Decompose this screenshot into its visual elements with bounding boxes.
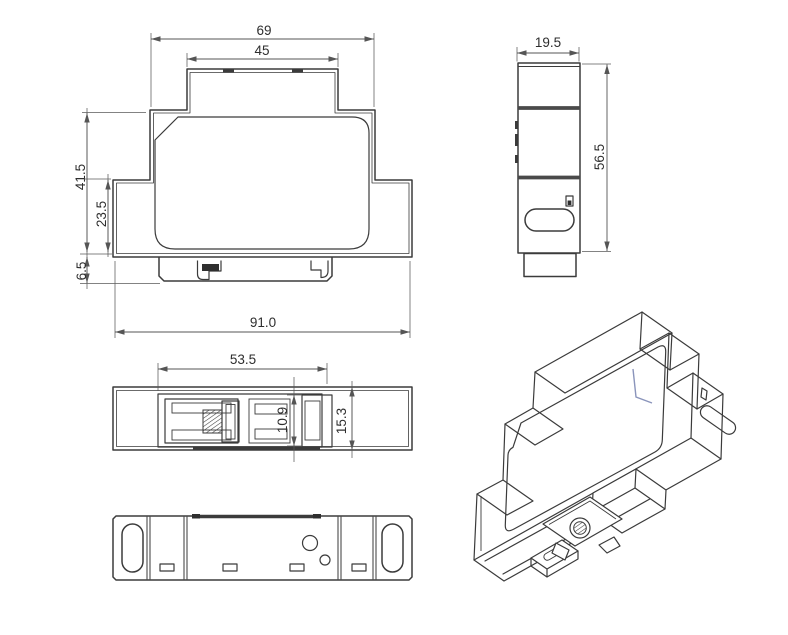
dim-front-overall-width: 91.0 (250, 315, 276, 330)
technical-drawing: 69 45 91.0 41.5 6.5 23.5 (0, 0, 788, 635)
top-vent-slot-3 (290, 564, 304, 571)
side-small-slot-mark (568, 201, 572, 206)
side-view: 19.5 56.5 (516, 35, 611, 277)
front-cover-panel (155, 117, 369, 249)
front-body-outline (113, 69, 412, 257)
clip-fork (165, 399, 238, 443)
dim-bottom-clip-overall-width: 15.3 (334, 408, 349, 434)
dim-front-body-height: 41.5 (73, 164, 88, 190)
dim-side-depth: 19.5 (535, 35, 561, 50)
dim-bottom-rail-slot-width: 10.9 (275, 407, 290, 433)
iso-din-clip-spring (531, 497, 622, 577)
clip-slider-bar (222, 401, 239, 442)
dim-bottom-clip-length: 53.5 (230, 352, 256, 367)
dim-side-overall-height: 56.5 (592, 144, 607, 170)
clip-frame (158, 394, 322, 447)
top-vent-slot-1 (160, 564, 174, 571)
iso-silhouette (474, 312, 723, 581)
din-clip-assembly (158, 394, 332, 447)
technical-drawing-page: 69 45 91.0 41.5 6.5 23.5 (0, 0, 788, 635)
top-rail-mark-end-left (192, 514, 200, 519)
front-view: 69 45 91.0 41.5 6.5 23.5 (73, 23, 412, 338)
clip-end-bracket (302, 395, 332, 447)
clip-spring (203, 410, 222, 433)
front-foot-hook-right (311, 261, 328, 278)
bottom-view-din-clip: 53.5 10.9 15.3 (113, 352, 412, 462)
front-din-foot (159, 257, 332, 281)
iso-side-oval-cutout (698, 403, 738, 437)
dim-front-lower-body-height: 23.5 (94, 201, 109, 227)
top-hole-large (303, 536, 318, 551)
front-foot-spring-clip (202, 264, 219, 271)
iso-side-small-slot (701, 388, 707, 400)
iso-clip-claw-right (599, 537, 620, 553)
front-body-inner-wall (117, 73, 410, 254)
dim-front-foot-height: 6.5 (74, 262, 89, 281)
top-section-lines (147, 516, 376, 580)
clip-end-bracket-slot (305, 401, 320, 440)
top-hole-small (320, 555, 330, 565)
iso-clip-screw-coil (574, 522, 587, 535)
iso-orientation-mark (633, 369, 652, 403)
dim-front-upper-body-width: 69 (256, 23, 271, 38)
top-vent-slot-4 (352, 564, 366, 571)
top-outline (113, 516, 412, 580)
isometric-view (474, 312, 738, 581)
top-vent-slot-2 (223, 564, 237, 571)
top-view (113, 514, 412, 580)
top-rail-mark-end-right (313, 514, 321, 519)
side-oval-cutout (525, 209, 574, 231)
top-mount-slot-left (122, 524, 143, 572)
dim-front-top-block-width: 45 (254, 43, 269, 58)
side-din-foot (524, 254, 576, 277)
side-body-outline (518, 63, 580, 253)
top-mount-slot-right (382, 524, 403, 572)
